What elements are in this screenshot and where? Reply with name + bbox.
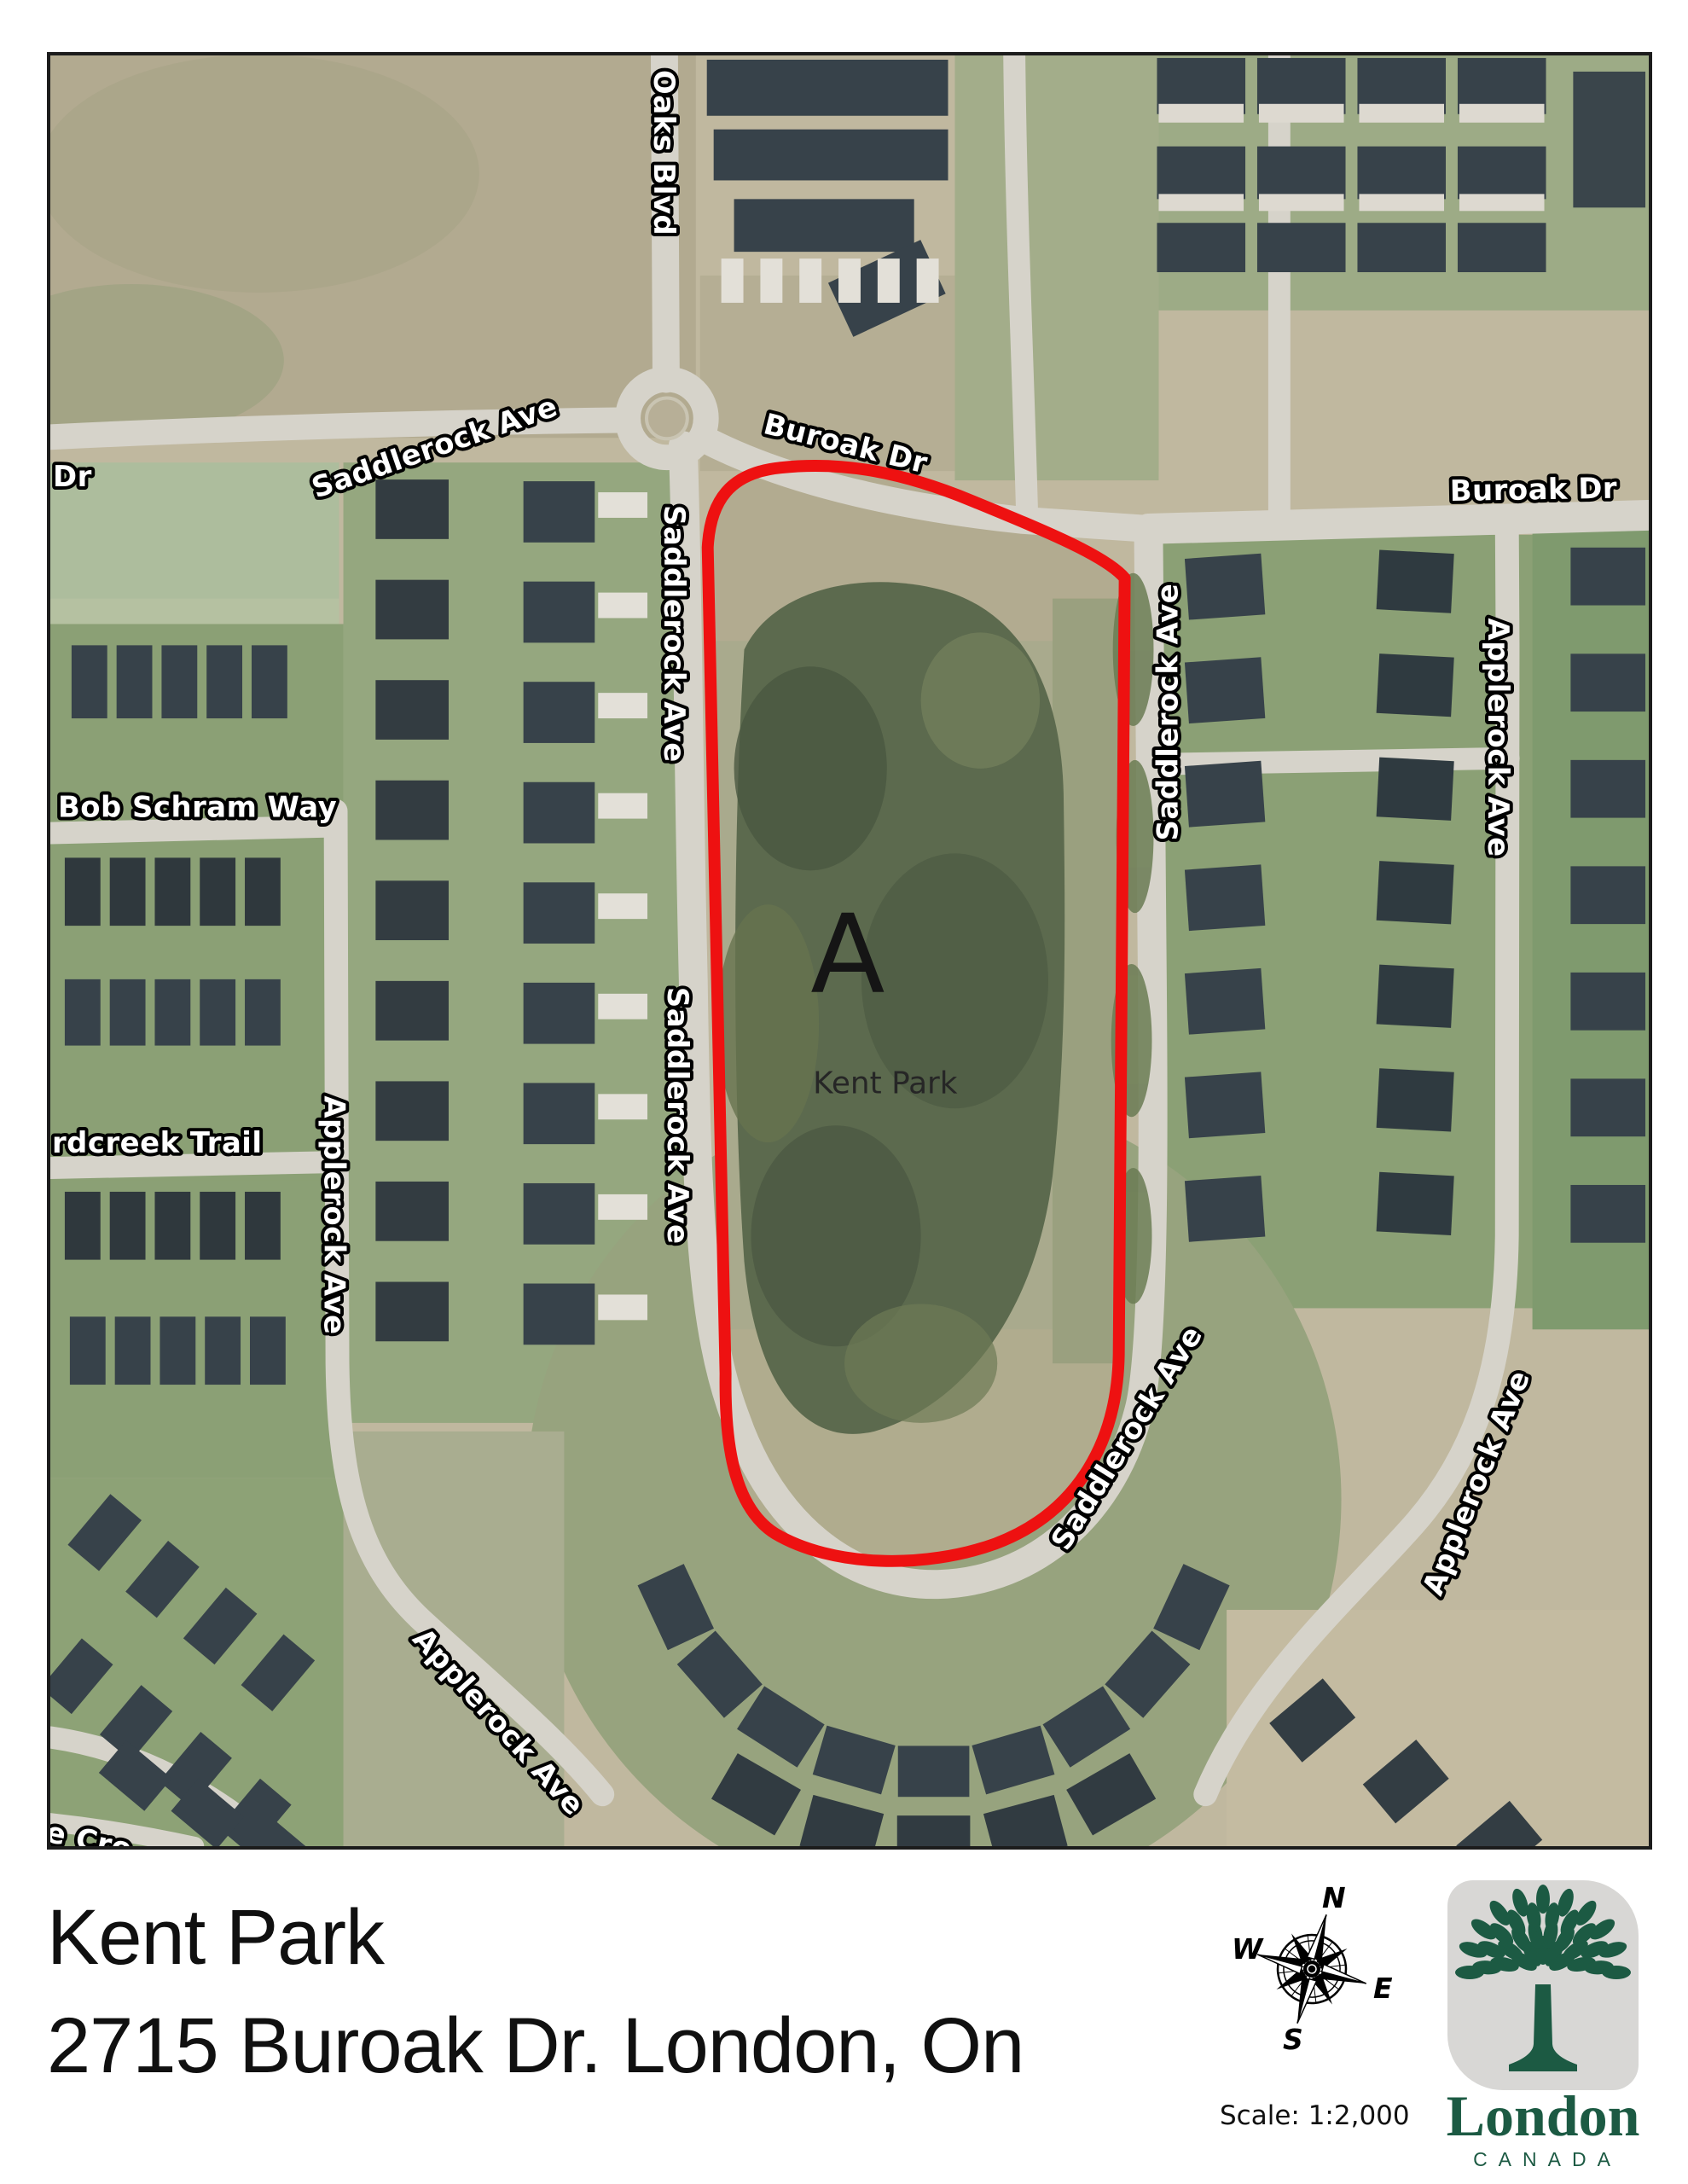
house xyxy=(1570,760,1645,818)
house xyxy=(65,857,101,926)
house xyxy=(200,857,235,926)
street-label-saddlerock-w-upper: Saddlerock Ave xyxy=(658,505,691,763)
compass-n: N xyxy=(1322,1884,1346,1914)
house xyxy=(1377,653,1454,717)
house xyxy=(375,880,449,940)
map-canvas: Oaks Blvd Saddlerock Ave Dr Buroak Dr Bu… xyxy=(50,55,1649,1846)
house xyxy=(1458,223,1546,272)
house xyxy=(714,130,948,181)
house xyxy=(1570,1185,1645,1243)
house xyxy=(1185,968,1265,1035)
park-area xyxy=(705,462,1129,1567)
house xyxy=(524,1284,595,1345)
house xyxy=(250,1316,286,1385)
street-label-saddlerock-w-lower: Saddlerock Ave xyxy=(661,987,694,1245)
house xyxy=(1185,1072,1265,1138)
house xyxy=(878,258,900,303)
compass-w: W xyxy=(1232,1932,1264,1966)
house xyxy=(110,979,146,1046)
house xyxy=(598,1294,647,1320)
compass-s: S xyxy=(1283,2023,1303,2054)
house xyxy=(110,1192,146,1260)
house xyxy=(1158,194,1244,211)
house xyxy=(1570,653,1645,712)
house xyxy=(70,1316,106,1385)
house xyxy=(1257,147,1346,200)
house xyxy=(707,60,948,116)
house xyxy=(200,1192,235,1260)
house xyxy=(524,1183,595,1245)
house xyxy=(161,645,197,718)
house xyxy=(1573,72,1645,207)
house xyxy=(838,258,861,303)
house xyxy=(200,979,235,1046)
house xyxy=(1259,104,1344,123)
park-name-label: Kent Park xyxy=(813,1066,958,1101)
compass-rose: N E S W xyxy=(1227,1884,1397,2054)
house xyxy=(734,199,914,252)
house xyxy=(598,492,647,518)
house xyxy=(375,981,449,1041)
house xyxy=(1185,864,1265,931)
london-wordmark: London xyxy=(1438,2087,1648,2145)
house xyxy=(598,693,647,718)
house xyxy=(205,1316,241,1385)
map-title: Kent Park 2715 Buroak Dr. London, On xyxy=(47,1884,1024,2100)
house xyxy=(524,882,595,944)
house xyxy=(598,994,647,1019)
house xyxy=(524,983,595,1044)
london-country: CANADA xyxy=(1447,2148,1647,2171)
house xyxy=(1459,194,1545,211)
house xyxy=(160,1316,195,1385)
house xyxy=(252,645,287,718)
house xyxy=(117,645,153,718)
house xyxy=(375,781,449,840)
road-topcenter-vert xyxy=(1014,55,1027,514)
house xyxy=(1257,223,1346,272)
house xyxy=(375,680,449,740)
street-label-applerock-e: Applerock Ave xyxy=(1482,618,1515,857)
house xyxy=(1377,758,1454,821)
house xyxy=(1185,761,1265,828)
house xyxy=(897,1815,971,1846)
house xyxy=(1377,1068,1454,1131)
compass-star xyxy=(1241,1898,1383,2040)
leaf xyxy=(1455,1966,1484,1979)
house xyxy=(1570,973,1645,1031)
street-label-saddlerock-e: Saddlerock Ave xyxy=(1151,584,1184,841)
house xyxy=(375,1182,449,1241)
house xyxy=(1357,147,1446,200)
house xyxy=(375,580,449,640)
compass-e: E xyxy=(1373,1972,1393,2005)
house xyxy=(245,857,281,926)
street-label-dr: Dr xyxy=(53,460,92,493)
house xyxy=(1458,147,1546,200)
house xyxy=(1377,965,1454,1028)
street-label-buroak-right: Buroak Dr xyxy=(1449,472,1617,508)
leaf xyxy=(1602,1966,1631,1979)
tree-trunk xyxy=(1509,1984,1577,2071)
house xyxy=(1570,1078,1645,1136)
house xyxy=(598,1094,647,1119)
street-label-bob-schram: Bob Schram Way xyxy=(58,791,337,824)
house xyxy=(1158,104,1244,123)
house xyxy=(1377,550,1454,613)
house xyxy=(524,481,595,543)
house xyxy=(898,1745,970,1797)
house xyxy=(524,582,595,643)
street-label-applerock-w: Applerock Ave xyxy=(318,1095,351,1334)
page: { "map": { "labels": { "oaks_blvd": "Oak… xyxy=(0,0,1688,2184)
house xyxy=(524,782,595,844)
street-label-oaks-blvd: Oaks Blvd xyxy=(647,70,681,235)
house xyxy=(598,793,647,819)
house xyxy=(1357,223,1446,272)
house xyxy=(799,258,821,303)
house xyxy=(1359,104,1444,123)
house xyxy=(1185,554,1265,620)
london-tree-icon xyxy=(1447,1880,1639,2090)
house xyxy=(524,1083,595,1144)
house xyxy=(110,857,146,926)
house xyxy=(1157,223,1245,272)
house xyxy=(375,1081,449,1141)
house xyxy=(1157,147,1245,200)
house xyxy=(917,258,939,303)
house xyxy=(1259,194,1344,211)
house xyxy=(1570,866,1645,924)
leaf xyxy=(1536,1885,1550,1914)
house xyxy=(524,682,595,743)
house xyxy=(375,479,449,539)
house xyxy=(65,1192,101,1260)
house xyxy=(598,893,647,919)
house xyxy=(245,1192,281,1260)
house xyxy=(245,979,281,1046)
house xyxy=(206,645,242,718)
house xyxy=(598,1194,647,1220)
house xyxy=(760,258,782,303)
title-line-1: Kent Park xyxy=(47,1884,1024,1992)
house xyxy=(154,857,190,926)
scale-label: Scale: 1:2,000 xyxy=(1220,2100,1410,2131)
road-rdcreek xyxy=(50,1162,336,1168)
house xyxy=(72,645,107,718)
aerial-map: Oaks Blvd Saddlerock Ave Dr Buroak Dr Bu… xyxy=(47,52,1652,1850)
house xyxy=(1377,861,1454,924)
house xyxy=(1377,1172,1454,1235)
house xyxy=(1459,104,1545,123)
house xyxy=(1185,1176,1265,1242)
house xyxy=(375,1282,449,1342)
road-cross-right xyxy=(1151,758,1508,764)
road-buroak-right xyxy=(1149,515,1649,529)
london-logo-tile xyxy=(1447,1880,1639,2090)
title-line-2: 2715 Buroak Dr. London, On xyxy=(47,1992,1024,2100)
zone-a-label: A xyxy=(810,892,885,1019)
road-bob-schram xyxy=(50,827,336,834)
house xyxy=(598,593,647,619)
house xyxy=(1185,657,1265,723)
house xyxy=(154,1192,190,1260)
roundabout-island xyxy=(647,398,687,439)
house xyxy=(722,258,744,303)
house xyxy=(115,1316,151,1385)
house xyxy=(1359,194,1444,211)
house xyxy=(65,979,101,1046)
street-label-rdcreek: rdcreek Trail xyxy=(52,1126,263,1159)
house xyxy=(154,979,190,1046)
house xyxy=(1570,548,1645,606)
